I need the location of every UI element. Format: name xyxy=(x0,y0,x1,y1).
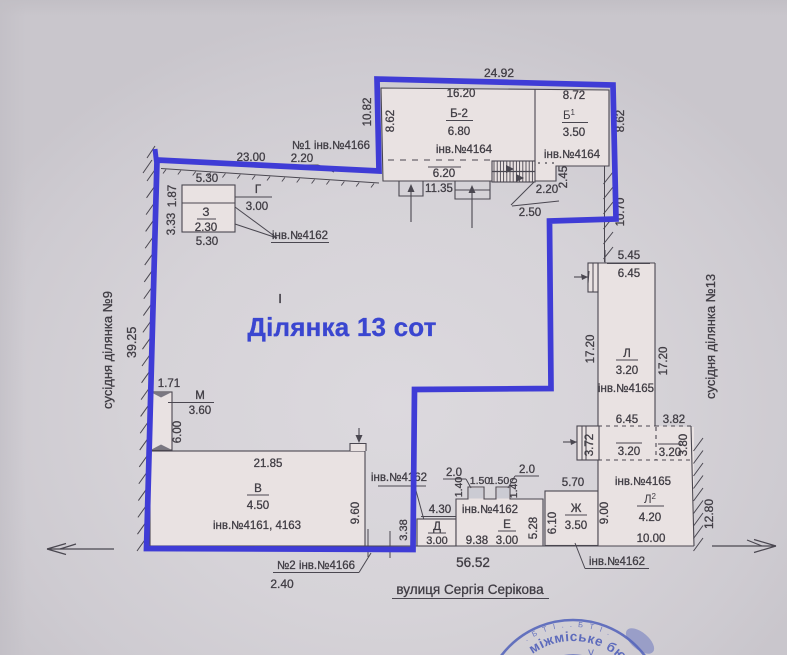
svg-text:39.25: 39.25 xyxy=(125,327,139,358)
svg-text:9.00: 9.00 xyxy=(599,502,611,524)
svg-text:3.50: 3.50 xyxy=(565,520,587,532)
svg-text:1.50: 1.50 xyxy=(489,475,510,487)
svg-text:2.40: 2.40 xyxy=(270,577,294,591)
svg-text:сусідня ділянка №9: сусідня ділянка №9 xyxy=(100,291,115,409)
svg-text:10.82: 10.82 xyxy=(362,98,374,127)
svg-text:Е: Е xyxy=(503,519,511,531)
svg-text:3.00: 3.00 xyxy=(496,535,518,547)
svg-text:інв.№4162: інв.№4162 xyxy=(371,472,427,484)
svg-text:1.50: 1.50 xyxy=(470,475,491,487)
svg-text:3.20: 3.20 xyxy=(616,365,638,377)
svg-text:6.80: 6.80 xyxy=(448,126,470,138)
svg-text:24.92: 24.92 xyxy=(484,66,514,80)
svg-text:2.50: 2.50 xyxy=(519,207,541,219)
svg-text:1.71: 1.71 xyxy=(158,378,180,390)
svg-text:12.80: 12.80 xyxy=(702,499,716,529)
svg-text:інв.№4161, 4163: інв.№4161, 4163 xyxy=(213,520,301,532)
svg-text:4.20: 4.20 xyxy=(639,512,661,524)
svg-text:8.62: 8.62 xyxy=(385,110,397,132)
svg-text:6.20: 6.20 xyxy=(433,168,455,180)
svg-text:3.60: 3.60 xyxy=(189,405,211,417)
svg-text:Ж: Ж xyxy=(571,503,582,515)
svg-text:4.30: 4.30 xyxy=(429,504,451,516)
svg-text:2.20: 2.20 xyxy=(291,153,313,165)
svg-text:8.72: 8.72 xyxy=(563,90,585,102)
svg-text:5.28: 5.28 xyxy=(528,517,540,539)
svg-text:Л: Л xyxy=(623,348,631,360)
svg-text:9.38: 9.38 xyxy=(466,535,488,547)
svg-text:інв.№4165: інв.№4165 xyxy=(598,383,654,395)
svg-text:2.20: 2.20 xyxy=(536,184,558,196)
svg-text:6.00: 6.00 xyxy=(172,421,184,443)
svg-text:4.50: 4.50 xyxy=(247,500,269,512)
svg-text:Г: Г xyxy=(255,184,262,196)
svg-text:вулиця Сергія Серікова: вулиця Сергія Серікова xyxy=(396,582,544,597)
svg-text:5.30: 5.30 xyxy=(196,173,218,185)
svg-text:3.33: 3.33 xyxy=(166,213,178,235)
svg-text:З: З xyxy=(203,207,210,219)
svg-text:3.00: 3.00 xyxy=(426,535,447,547)
svg-text:М: М xyxy=(195,390,205,402)
svg-text:9.60: 9.60 xyxy=(350,502,362,524)
svg-text:56.52: 56.52 xyxy=(456,555,490,570)
svg-text:3.50: 3.50 xyxy=(563,127,585,139)
svg-text:у: у xyxy=(588,645,594,655)
svg-text:6.45: 6.45 xyxy=(618,268,640,280)
svg-text:1.40: 1.40 xyxy=(453,477,465,498)
svg-text:3.20: 3.20 xyxy=(618,446,640,458)
svg-text:Б-2: Б-2 xyxy=(450,108,468,120)
svg-text:6.10: 6.10 xyxy=(547,512,559,534)
svg-text:Ділянка 13 сот: Ділянка 13 сот xyxy=(247,312,436,342)
svg-text:№2 інв.№4166: №2 інв.№4166 xyxy=(277,560,355,572)
svg-text:інв.№4164: інв.№4164 xyxy=(544,149,601,161)
svg-text:3.72: 3.72 xyxy=(584,434,596,456)
svg-text:інв.№4162: інв.№4162 xyxy=(589,556,645,568)
svg-text:2.45: 2.45 xyxy=(558,166,570,188)
svg-text:3.00: 3.00 xyxy=(246,201,268,213)
svg-text:3.82: 3.82 xyxy=(663,414,685,426)
svg-text:2.30: 2.30 xyxy=(195,222,217,234)
svg-text:інв.№4162: інв.№4162 xyxy=(462,504,518,516)
svg-text:інв.№4165: інв.№4165 xyxy=(615,476,671,488)
svg-text:І: І xyxy=(278,291,282,306)
svg-text:17.20: 17.20 xyxy=(585,335,597,364)
svg-text:1.40: 1.40 xyxy=(508,478,520,499)
svg-text:3.80: 3.80 xyxy=(678,434,690,456)
svg-text:11.35: 11.35 xyxy=(425,183,453,195)
svg-text:В: В xyxy=(254,483,262,495)
svg-text:5.45: 5.45 xyxy=(618,250,640,262)
svg-text:Д: Д xyxy=(433,521,441,533)
svg-text:сусідня ділянка №13: сусідня ділянка №13 xyxy=(703,274,718,399)
svg-text:6.45: 6.45 xyxy=(616,414,638,426)
svg-text:№1 інв.№4166: №1 інв.№4166 xyxy=(292,140,370,152)
svg-text:17.20: 17.20 xyxy=(658,347,670,376)
svg-text:21.85: 21.85 xyxy=(254,458,283,470)
svg-text:2.0: 2.0 xyxy=(519,464,535,476)
svg-text:3.38: 3.38 xyxy=(398,519,410,540)
svg-text:10.00: 10.00 xyxy=(637,533,666,545)
svg-text:інв.№4164: інв.№4164 xyxy=(436,144,493,156)
svg-text:1.87: 1.87 xyxy=(167,185,179,207)
svg-text:5.30: 5.30 xyxy=(196,236,218,248)
svg-text:16.20: 16.20 xyxy=(447,88,476,100)
svg-text:5.70: 5.70 xyxy=(562,477,584,489)
svg-text:інв.№4162: інв.№4162 xyxy=(272,230,328,242)
